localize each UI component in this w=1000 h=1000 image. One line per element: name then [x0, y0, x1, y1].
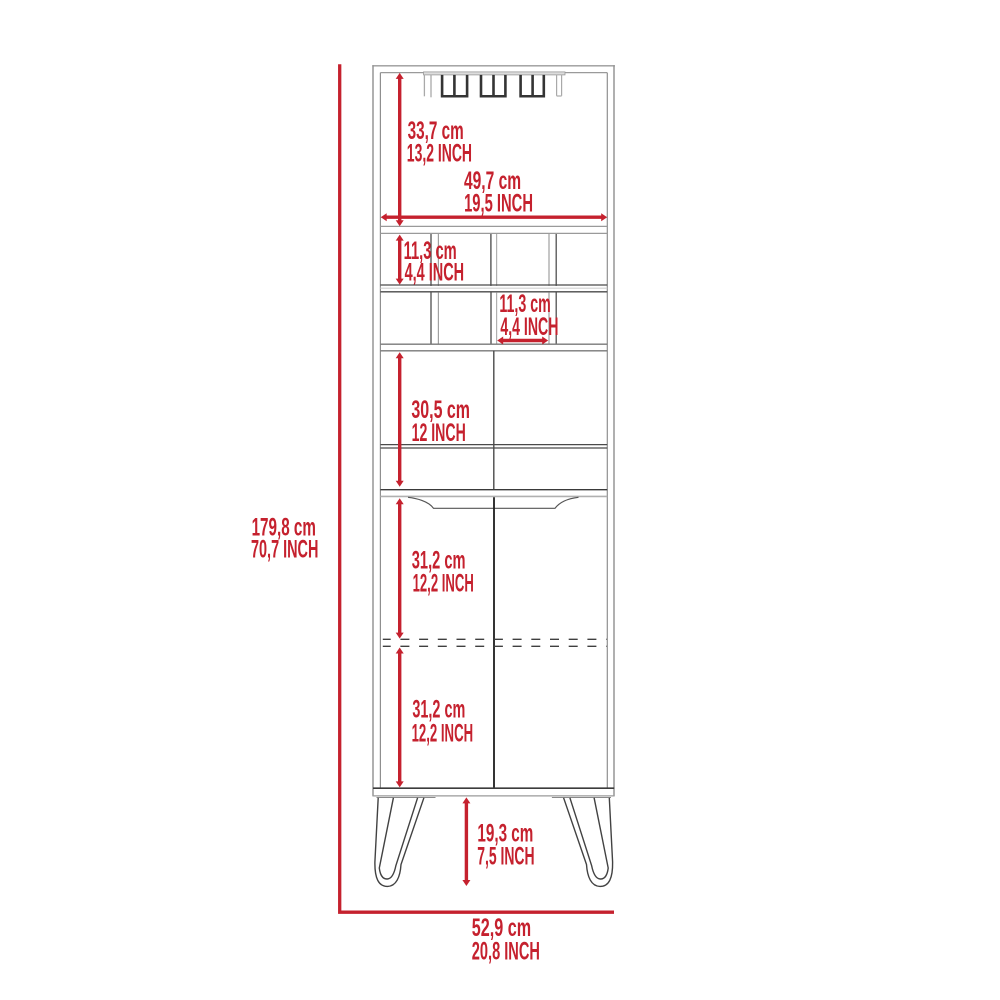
svg-text:12,2 INCH: 12,2 INCH	[413, 569, 474, 597]
svg-text:19,5 INCH: 19,5 INCH	[464, 190, 533, 218]
svg-text:12 INCH: 12 INCH	[412, 419, 466, 447]
svg-text:20,8 INCH: 20,8 INCH	[472, 937, 540, 965]
svg-text:4,4 INCH: 4,4 INCH	[500, 313, 558, 341]
svg-text:4,4 INCH: 4,4 INCH	[405, 259, 465, 287]
svg-text:70,7 INCH: 70,7 INCH	[251, 536, 318, 564]
svg-text:7,5 INCH: 7,5 INCH	[477, 843, 534, 871]
svg-text:13,2 INCH: 13,2 INCH	[407, 140, 472, 168]
svg-text:12,2 INCH: 12,2 INCH	[412, 720, 474, 748]
